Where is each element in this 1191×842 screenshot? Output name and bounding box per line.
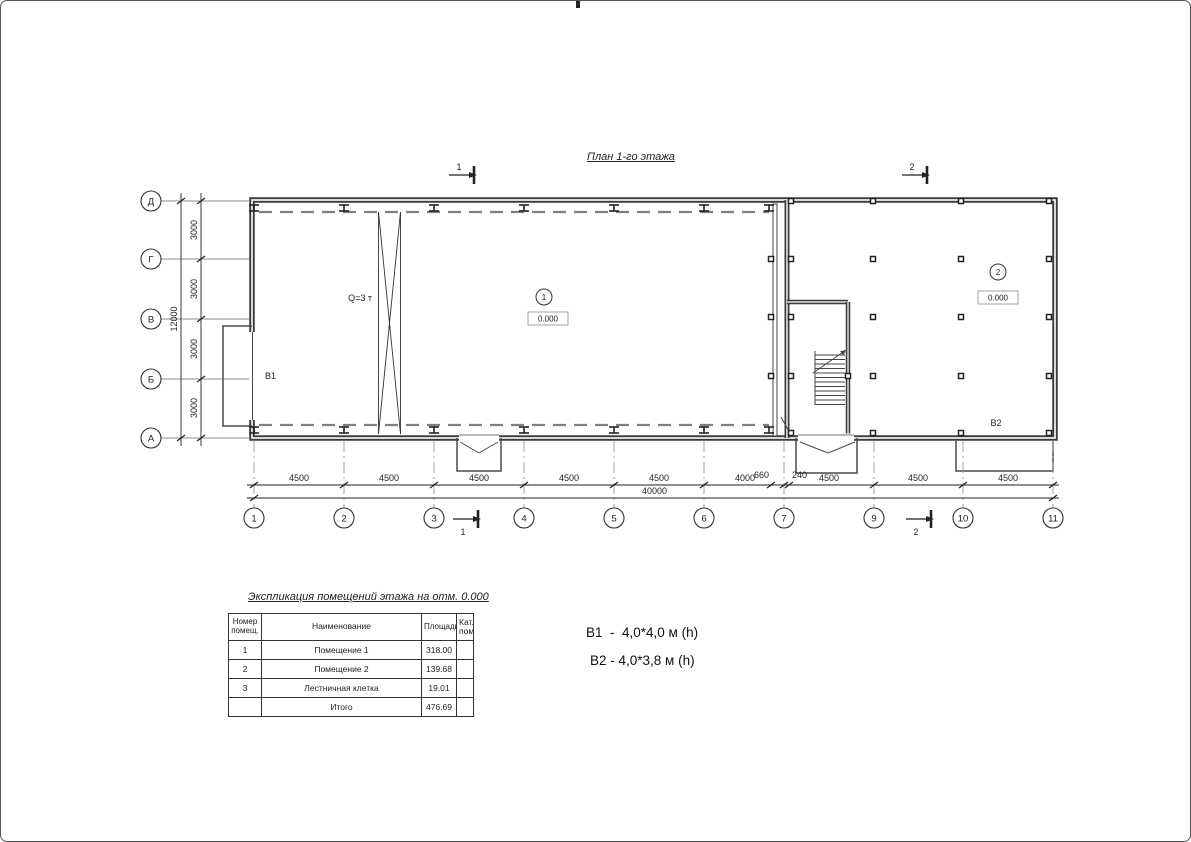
room2-elevation: 0.000 — [988, 294, 1009, 303]
crane-capacity-label: Q=3 т — [348, 293, 372, 303]
section-2-top-label: 2 — [909, 162, 914, 172]
dim-bottom-3: 4500 — [559, 473, 579, 483]
section-2-bottom-label: 2 — [913, 527, 918, 537]
room-category — [457, 641, 474, 660]
dim-bottom-0: 4500 — [289, 473, 309, 483]
total-empty-cell — [229, 698, 262, 717]
axis-label-10: 10 — [958, 514, 969, 525]
vestibule-axis3 — [457, 438, 501, 471]
dim-bottom-10: 4500 — [998, 473, 1018, 483]
door-label-b1: B1 — [265, 371, 276, 381]
dim-bottom-4: 4500 — [649, 473, 669, 483]
dim-bottom-7: 240 — [792, 470, 807, 480]
building-outline — [252, 200, 1055, 438]
right-loading-dock — [956, 441, 1053, 471]
room1-number: 1 — [542, 293, 547, 302]
room-number: 2 — [229, 660, 262, 679]
section-mark-2-bottom: 2 — [906, 510, 934, 537]
room-name: Помещение 1 — [262, 641, 422, 660]
room-category — [457, 660, 474, 679]
square-columns — [769, 199, 1052, 436]
dim-bottom-total: 40000 — [642, 486, 667, 496]
room-area: 139.68 — [422, 660, 457, 679]
drawing-sheet: План 1-го этажа — [0, 0, 1191, 842]
axis-label-7: 7 — [781, 514, 786, 525]
dim-bottom-2: 4500 — [469, 473, 489, 483]
axis-label-b: Б — [148, 375, 154, 386]
left-axis-bubbles: Д Г В Б А — [141, 191, 161, 448]
axis-label-a: А — [148, 434, 155, 445]
table-row: 2 Помещение 2 139.68 — [229, 660, 474, 679]
section-1-top-label: 1 — [456, 162, 461, 172]
table-row: 1 Помещение 1 318.00 — [229, 641, 474, 660]
room-name: Помещение 2 — [262, 660, 422, 679]
crane-rail-lines — [259, 212, 769, 425]
dim-left-1: 3000 — [189, 279, 199, 299]
dim-bottom-6: 660 — [754, 470, 769, 480]
section-mark-1-top: 1 — [449, 162, 477, 184]
axis-label-9: 9 — [871, 514, 876, 525]
dim-bottom-5: 4000 — [735, 473, 755, 483]
dividing-wall-axis7 — [773, 200, 787, 438]
explication-block: Экспликация помещений этажа на отм. 0.00… — [228, 591, 474, 717]
i-columns — [249, 205, 774, 433]
wall-openings — [247, 332, 854, 442]
axis-label-d: Д — [148, 197, 155, 208]
axis-label-2: 2 — [341, 514, 346, 525]
axis-label-6: 6 — [701, 514, 706, 525]
col-header-category: Кат. пом. — [457, 614, 474, 641]
dim-bottom-8: 4500 — [819, 473, 839, 483]
room2-marker: 2 0.000 — [978, 264, 1018, 304]
table-total-row: Итого 476.69 — [229, 698, 474, 717]
bottom-axis-bubbles: 1 2 3 4 5 6 7 9 10 11 — [244, 508, 1063, 528]
room-name: Лестничная клетка — [262, 679, 422, 698]
total-category-cell — [457, 698, 474, 717]
table-row: 3 Лестничная клетка 19.01 — [229, 679, 474, 698]
explication-title: Экспликация помещений этажа на отм. 0.00… — [248, 591, 474, 603]
col-header-name: Наименование — [262, 614, 422, 641]
col-header-area: Площадь — [422, 614, 457, 641]
col-header-number: Номер помещ. — [229, 614, 262, 641]
section-1-bottom-label: 1 — [460, 527, 465, 537]
floor-plan-drawing: Q=3 т — [1, 1, 1190, 841]
dim-left-3: 3000 — [189, 398, 199, 418]
vestibule-axis7 — [796, 438, 857, 473]
dim-left-0: 3000 — [189, 220, 199, 240]
note-gate-b1: B1 - 4,0*4,0 м (h) — [586, 625, 698, 640]
axis-label-5: 5 — [611, 514, 616, 525]
dim-bottom-9: 4500 — [908, 473, 928, 483]
room2-number: 2 — [996, 268, 1001, 277]
room-category — [457, 679, 474, 698]
axis-label-3: 3 — [431, 514, 436, 525]
staircase — [813, 350, 846, 405]
room-area: 19.01 — [422, 679, 457, 698]
door-label-b2: B2 — [990, 418, 1001, 428]
section-mark-2-top: 2 — [902, 162, 930, 184]
dim-left-total: 12000 — [169, 306, 179, 331]
note-gate-b2: B2 - 4,0*3,8 м (h) — [590, 653, 695, 668]
room-number: 1 — [229, 641, 262, 660]
explication-table: Номер помещ. Наименование Площадь Кат. п… — [228, 613, 474, 717]
axis-label-g: Г — [148, 255, 153, 266]
dim-left-2: 3000 — [189, 339, 199, 359]
section-mark-1-bottom: 1 — [453, 510, 481, 537]
table-header-row: Номер помещ. Наименование Площадь Кат. п… — [229, 614, 474, 641]
room-number: 3 — [229, 679, 262, 698]
dim-bottom-1: 4500 — [379, 473, 399, 483]
axis-label-1: 1 — [251, 514, 256, 525]
axis-label-v: В — [148, 315, 154, 326]
total-value: 476.69 — [422, 698, 457, 717]
room1-elevation: 0.000 — [538, 315, 559, 324]
room1-marker: 1 0.000 — [528, 289, 568, 325]
axis-label-4: 4 — [521, 514, 526, 525]
axis-label-11: 11 — [1048, 514, 1058, 525]
room-area: 318.00 — [422, 641, 457, 660]
total-label: Итого — [262, 698, 422, 717]
crane-bracing — [379, 212, 401, 434]
